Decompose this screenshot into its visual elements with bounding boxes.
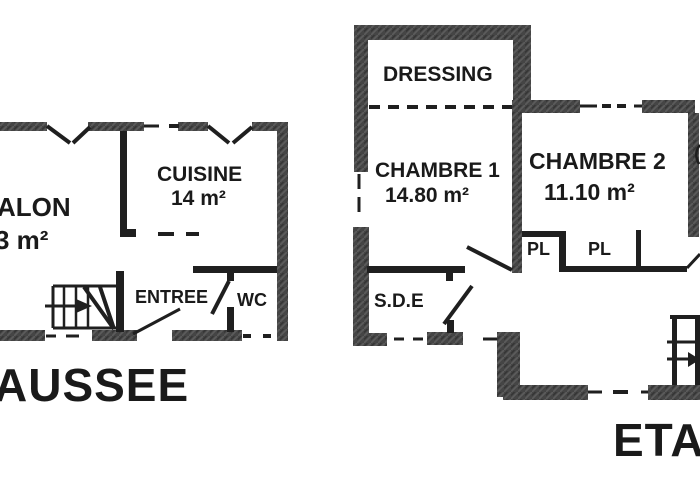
chambre2-area-label: 11.10 m² [544, 181, 635, 204]
wc-wall [193, 266, 277, 273]
upper-floor-title: ETAGE [613, 417, 700, 463]
ground-floor-title: AUSSEE [0, 362, 189, 408]
wc-label: WC [237, 291, 267, 309]
sde-wall [367, 266, 465, 273]
exterior-wall [354, 25, 368, 172]
sde-label: S.D.E [374, 292, 424, 311]
placard2-label: PL [588, 240, 611, 258]
exterior-wall [353, 227, 369, 345]
salon-area-label: 3 m² [0, 227, 48, 253]
exterior-wall [0, 330, 45, 341]
exterior-wall [277, 122, 288, 341]
entree-label: ENTREE [135, 288, 208, 306]
cuisine-area-label: 14 m² [171, 188, 226, 209]
salon-label: ALON [0, 194, 71, 220]
placard1-label: PL [527, 240, 550, 258]
window-leaf-icon [47, 126, 70, 143]
door-leaf-icon [467, 247, 512, 270]
interior-wall [120, 131, 127, 230]
exterior-wall [520, 100, 580, 113]
wc-wall [227, 307, 234, 332]
dressing-label: DRESSING [383, 64, 493, 85]
wc-door-hinge [227, 273, 234, 281]
door-leaf-icon [212, 281, 229, 314]
exterior-wall [642, 100, 695, 113]
floorplan-page: { "colors": { "background": "#ffffff", "… [0, 0, 700, 500]
exterior-wall [648, 385, 700, 400]
exterior-wall [427, 332, 463, 345]
window-leaf-icon [233, 127, 252, 143]
exterior-wall [355, 25, 531, 40]
interior-wall [512, 100, 522, 273]
window-leaf-icon [73, 127, 90, 143]
exterior-wall [513, 25, 531, 113]
exterior-wall [353, 333, 387, 346]
interior-wall [120, 229, 136, 237]
window-leaf-icon [208, 126, 229, 143]
exterior-wall [688, 113, 699, 237]
exterior-wall [0, 122, 47, 131]
sde-door-hinge [447, 320, 454, 333]
door-leaf-icon [687, 254, 700, 268]
exterior-wall [92, 330, 137, 341]
exterior-wall [503, 385, 588, 400]
stairs-icon [667, 315, 700, 385]
exterior-wall [88, 122, 144, 131]
chambre1-area-label: 14.80 m² [385, 185, 469, 206]
stairs-arrow-icon [76, 299, 92, 313]
chambre2-label: CHAMBRE 2 [529, 150, 666, 173]
chambre1-label: CHAMBRE 1 [375, 160, 500, 181]
sde-door-hinge [446, 273, 453, 281]
cuisine-label: CUISINE [157, 164, 242, 185]
stairs-icon [45, 271, 124, 332]
exterior-wall [178, 122, 208, 131]
door-leaf-icon [444, 286, 472, 324]
